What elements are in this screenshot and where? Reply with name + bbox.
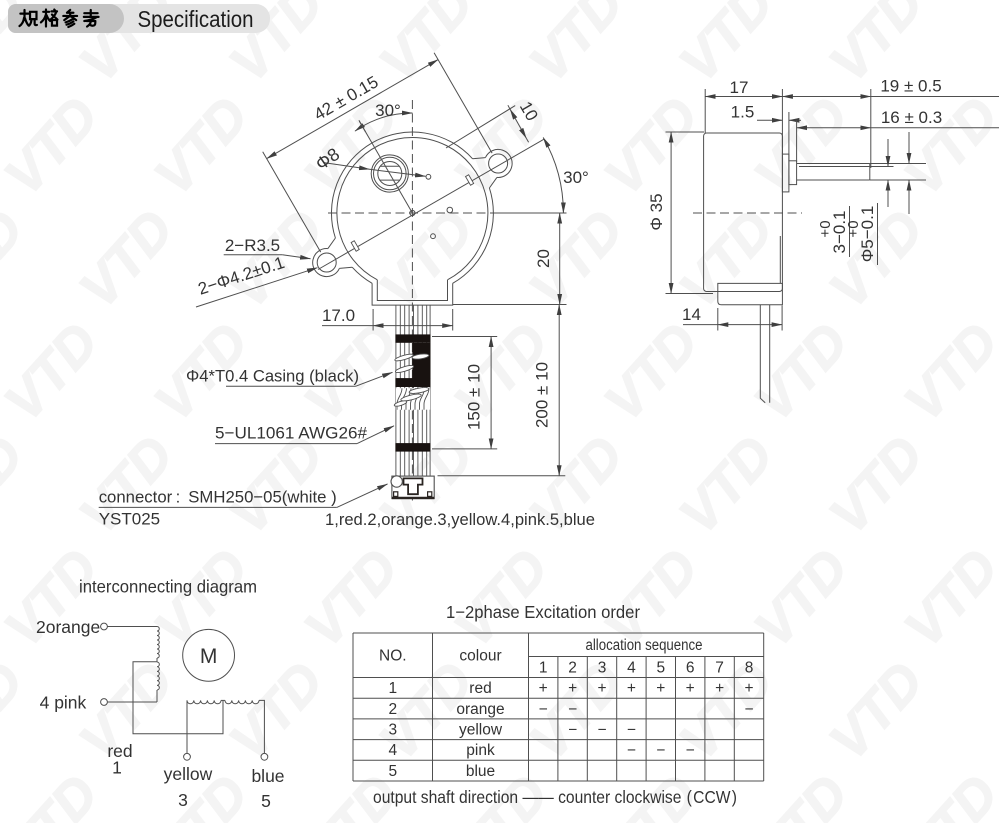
svg-text:NO.: NO.	[379, 648, 407, 665]
svg-text:blue: blue	[466, 763, 495, 780]
svg-text:−: −	[686, 742, 695, 759]
svg-text:−: −	[568, 722, 577, 739]
svg-text:2: 2	[568, 660, 577, 677]
svg-text:Φ4*T0.4 Casing (black): Φ4*T0.4 Casing (black)	[186, 367, 359, 386]
svg-text:+: +	[627, 680, 636, 697]
svg-text:YST025: YST025	[99, 510, 160, 529]
svg-text:−: −	[539, 701, 548, 718]
svg-text:+: +	[597, 680, 606, 697]
svg-text:1: 1	[388, 680, 397, 697]
svg-text:red: red	[469, 680, 491, 697]
svg-text:19 ± 0.5: 19 ± 0.5	[880, 77, 941, 96]
svg-text:30°: 30°	[563, 168, 589, 187]
svg-text:+: +	[744, 680, 753, 697]
svg-text:−: −	[627, 742, 636, 759]
svg-text:1−2phase Excitation order: 1−2phase Excitation order	[446, 602, 640, 622]
svg-text:+: +	[715, 680, 724, 697]
svg-text:M: M	[200, 645, 218, 668]
svg-text:−: −	[568, 701, 577, 718]
svg-text:7: 7	[715, 660, 724, 677]
svg-text:−: −	[744, 701, 753, 718]
svg-text:Φ5−0.1: Φ5−0.1	[858, 206, 877, 263]
svg-text:8: 8	[745, 660, 754, 677]
svg-text:interconnecting diagram: interconnecting diagram	[79, 577, 257, 597]
svg-text:−: −	[656, 742, 665, 759]
svg-text:30°: 30°	[375, 101, 401, 120]
svg-text:blue: blue	[251, 766, 284, 786]
svg-text:output shaft direction —— coun: output shaft direction —— counter clockw…	[373, 787, 737, 807]
svg-text:Specification: Specification	[138, 6, 254, 32]
svg-text:pink: pink	[466, 742, 495, 759]
svg-text:Φ8: Φ8	[312, 144, 343, 174]
svg-text:3: 3	[388, 722, 397, 739]
svg-text:14: 14	[682, 305, 701, 324]
svg-text:allocation sequence: allocation sequence	[586, 637, 703, 654]
svg-text:17: 17	[730, 78, 749, 97]
svg-text:6: 6	[686, 660, 695, 677]
svg-text:1: 1	[539, 660, 548, 677]
svg-text:Φ 35: Φ 35	[647, 193, 666, 230]
svg-text:10: 10	[516, 98, 542, 124]
svg-text:−: −	[597, 722, 606, 739]
svg-text:4: 4	[627, 660, 636, 677]
svg-text:1: 1	[112, 758, 122, 778]
svg-text:+: +	[686, 680, 695, 697]
svg-text:17.0: 17.0	[322, 306, 355, 325]
svg-text:connector : SMH250−05(white ): connector : SMH250−05(white )	[99, 488, 337, 507]
svg-text:orange: orange	[456, 701, 504, 718]
svg-text:5: 5	[656, 660, 665, 677]
svg-text:+: +	[656, 680, 665, 697]
svg-text:4 pink: 4 pink	[40, 693, 87, 713]
svg-text:2−Φ4.2±0.1: 2−Φ4.2±0.1	[196, 253, 287, 299]
svg-text:yellow: yellow	[459, 722, 503, 739]
svg-text:150 ± 10: 150 ± 10	[465, 364, 484, 430]
svg-text:+: +	[568, 680, 577, 697]
svg-text:20: 20	[534, 249, 553, 268]
svg-text:1.5: 1.5	[731, 103, 755, 122]
svg-text:5: 5	[388, 763, 397, 780]
svg-text:+: +	[539, 680, 548, 697]
svg-text:2−R3.5: 2−R3.5	[225, 236, 280, 255]
svg-text:colour: colour	[459, 648, 501, 665]
svg-text:1,red.2,orange.3,yellow.4,pink: 1,red.2,orange.3,yellow.4,pink.5,blue	[325, 510, 595, 529]
svg-text:3: 3	[598, 660, 607, 677]
svg-text:2orange: 2orange	[36, 617, 100, 637]
svg-text:yellow: yellow	[164, 764, 213, 784]
svg-text:5: 5	[261, 791, 271, 811]
svg-text:5−UL1061 AWG26#: 5−UL1061 AWG26#	[215, 424, 368, 443]
svg-text:4: 4	[388, 742, 397, 759]
svg-text:16 ± 0.3: 16 ± 0.3	[881, 108, 942, 127]
svg-text:200 ± 10: 200 ± 10	[533, 362, 552, 428]
svg-text:−: −	[627, 722, 636, 739]
svg-text:3: 3	[178, 790, 188, 810]
svg-text:2: 2	[388, 701, 397, 718]
